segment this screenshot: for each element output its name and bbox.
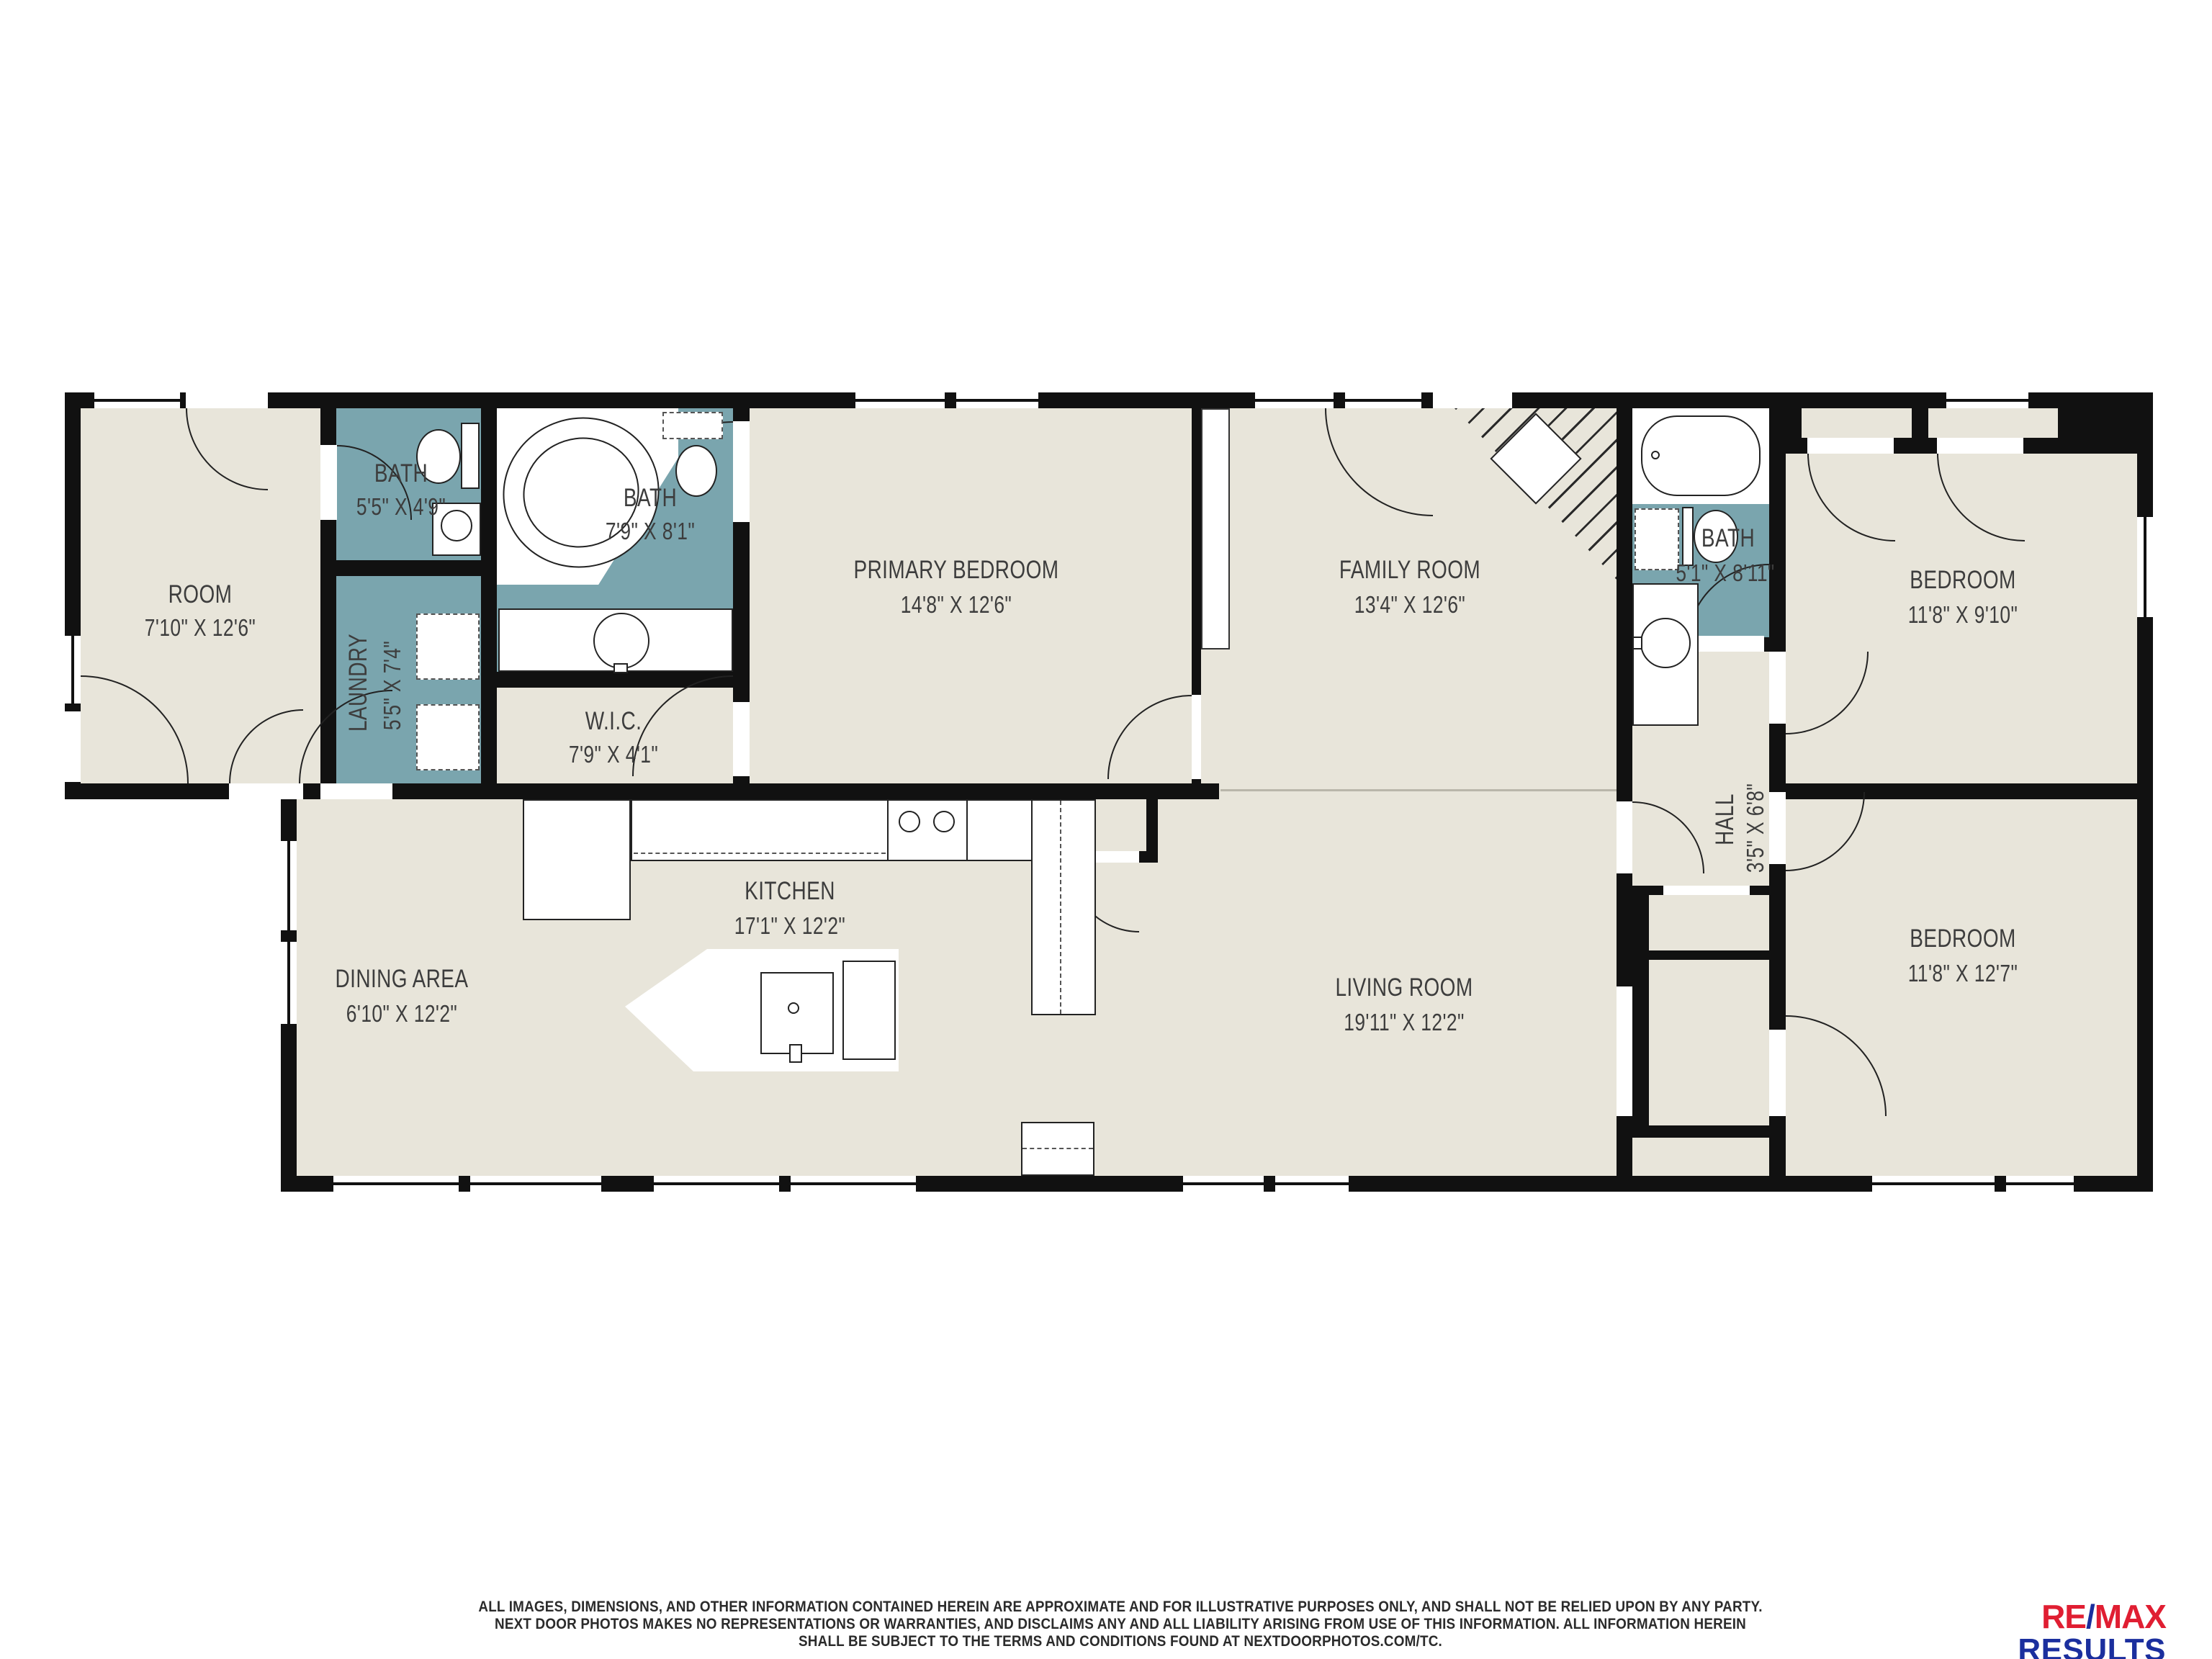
window <box>65 634 81 706</box>
pantry-dashed-line <box>1022 1148 1093 1149</box>
door-gap <box>229 783 303 799</box>
refrigerator <box>523 799 631 920</box>
room-label: BEDROOM <box>1910 925 2015 953</box>
door-gap <box>320 783 392 799</box>
room-label: PRIMARY BEDROOM <box>853 556 1058 585</box>
sink-faucet <box>1632 637 1642 649</box>
island-sink-drain <box>788 1002 799 1014</box>
disclaimer-line: ALL IMAGES, DIMENSIONS, AND OTHER INFORM… <box>478 1599 1762 1616</box>
room-label: BATH <box>374 459 428 488</box>
hall-closet1-floor <box>1649 895 1769 950</box>
room-dims: 5'5" X 4'9" <box>356 493 446 521</box>
remax-slash: / <box>2086 1598 2095 1635</box>
door-gap <box>1617 801 1632 873</box>
room-dims: 3'5" X 6'8" <box>1742 783 1769 873</box>
toilet-tank <box>1682 507 1694 566</box>
closet-opening <box>1937 438 2023 454</box>
room-label: W.I.C. <box>585 707 642 736</box>
sink-faucet <box>613 663 628 673</box>
remax-wordmark: RE/MAX <box>2018 1600 2166 1633</box>
room-dims: 17'1" X 12'2" <box>734 912 845 940</box>
door-gap <box>1433 392 1512 408</box>
room-label: ROOM <box>168 580 233 609</box>
door-gap <box>733 702 750 776</box>
range <box>887 799 968 861</box>
upper-cabinet-dashed-line <box>634 853 886 854</box>
window <box>853 392 947 408</box>
door-gap <box>1769 1030 1786 1116</box>
window <box>1273 1176 1351 1192</box>
room-label: LIVING ROOM <box>1335 974 1473 1002</box>
closet-opening <box>1663 886 1750 895</box>
room-label: BEDROOM <box>1910 566 2015 595</box>
window <box>652 1176 781 1192</box>
results-wordmark: RESULTS <box>2018 1635 2166 1659</box>
room-dims: 19'11" X 12'2" <box>1344 1009 1465 1036</box>
room-dims: 14'8" X 12'6" <box>901 591 1012 619</box>
window <box>2004 1176 2076 1192</box>
room-bedroom-br-floor <box>1786 799 2137 1176</box>
room-dims: 7'10" X 12'6" <box>145 614 256 642</box>
bedroom-tr-closet-a <box>1802 408 1912 438</box>
closet-opening <box>1617 986 1632 1116</box>
dryer <box>416 704 480 770</box>
remax-re: RE <box>2041 1598 2086 1635</box>
tub-faucet <box>1651 451 1660 459</box>
room-dims: 5'1" X 8'11" <box>1676 559 1774 587</box>
floor-plan-page: ROOM 7'10" X 12'6" BATH 5'5" X 4'9" LAUN… <box>0 0 2212 1659</box>
window <box>1253 392 1336 408</box>
toilet-bowl <box>675 445 717 497</box>
linen-cabinet <box>1635 508 1679 570</box>
window <box>1870 1176 1997 1192</box>
room-label: LAUNDRY <box>344 634 373 732</box>
window <box>281 839 297 932</box>
door-gap <box>1192 695 1201 779</box>
door-gap <box>733 421 750 522</box>
window <box>331 1176 461 1192</box>
kitchen-counter-leg <box>1031 799 1096 1015</box>
room-label: DINING AREA <box>336 965 469 994</box>
room-label: FAMILY ROOM <box>1339 556 1480 585</box>
window <box>281 940 297 1026</box>
family-living-opening <box>1219 783 1617 799</box>
medicine-cabinet <box>662 412 723 439</box>
room-dims: 7'9" X 4'1" <box>569 741 658 768</box>
room-dims: 5'5" X 7'4" <box>379 641 406 730</box>
pocket-opening <box>1201 408 1230 649</box>
door-gap <box>1769 652 1786 724</box>
window <box>1944 392 2031 408</box>
remax-max: MAX <box>2095 1598 2166 1635</box>
sink-bowl <box>1640 618 1691 668</box>
room-dims: 7'9" X 8'1" <box>606 518 695 545</box>
closet-opening <box>1807 438 1894 454</box>
sink-bowl <box>593 613 649 669</box>
window <box>954 392 1040 408</box>
range-burner <box>933 811 955 832</box>
remax-results-logo: RE/MAX RESULTS <box>2018 1600 2166 1659</box>
room-dims: 11'8" X 9'10" <box>1908 601 2018 629</box>
toilet-tank <box>461 423 480 489</box>
window <box>1343 392 1424 408</box>
door-gap <box>65 711 81 782</box>
range-burner <box>899 811 920 832</box>
washer <box>416 613 480 680</box>
window <box>2137 515 2153 619</box>
disclaimer-line: NEXT DOOR PHOTOS MAKES NO REPRESENTATION… <box>495 1616 1746 1633</box>
room-label: HALL <box>1711 793 1740 845</box>
door-gap <box>186 392 268 408</box>
hall-closet2-floor <box>1649 960 1769 1125</box>
door-gap <box>320 445 337 520</box>
island-sink <box>760 972 834 1054</box>
bedroom-tr-closet-b <box>1928 408 2058 438</box>
room-label: BATH <box>1701 524 1755 553</box>
room-dims: 13'4" X 12'6" <box>1354 591 1465 619</box>
window <box>788 1176 918 1192</box>
door-gap <box>1769 792 1786 864</box>
floor-transition-line <box>1220 789 1617 791</box>
window <box>1181 1176 1266 1192</box>
disclaimer-line: SHALL BE SUBJECT TO THE TERMS AND CONDIT… <box>799 1633 1442 1650</box>
room-dims: 6'10" X 12'2" <box>346 1000 457 1028</box>
window <box>468 1176 603 1192</box>
room-dims: 11'8" X 12'7" <box>1908 960 2018 987</box>
island-cabinet <box>842 961 896 1060</box>
room-label: BATH <box>624 484 677 513</box>
floor-under-closet <box>1632 1138 1769 1176</box>
upper-cabinet-dashed-line <box>1060 801 1061 1014</box>
room-label: KITCHEN <box>745 877 835 906</box>
island-sink-faucet <box>789 1044 802 1063</box>
window <box>92 392 182 408</box>
